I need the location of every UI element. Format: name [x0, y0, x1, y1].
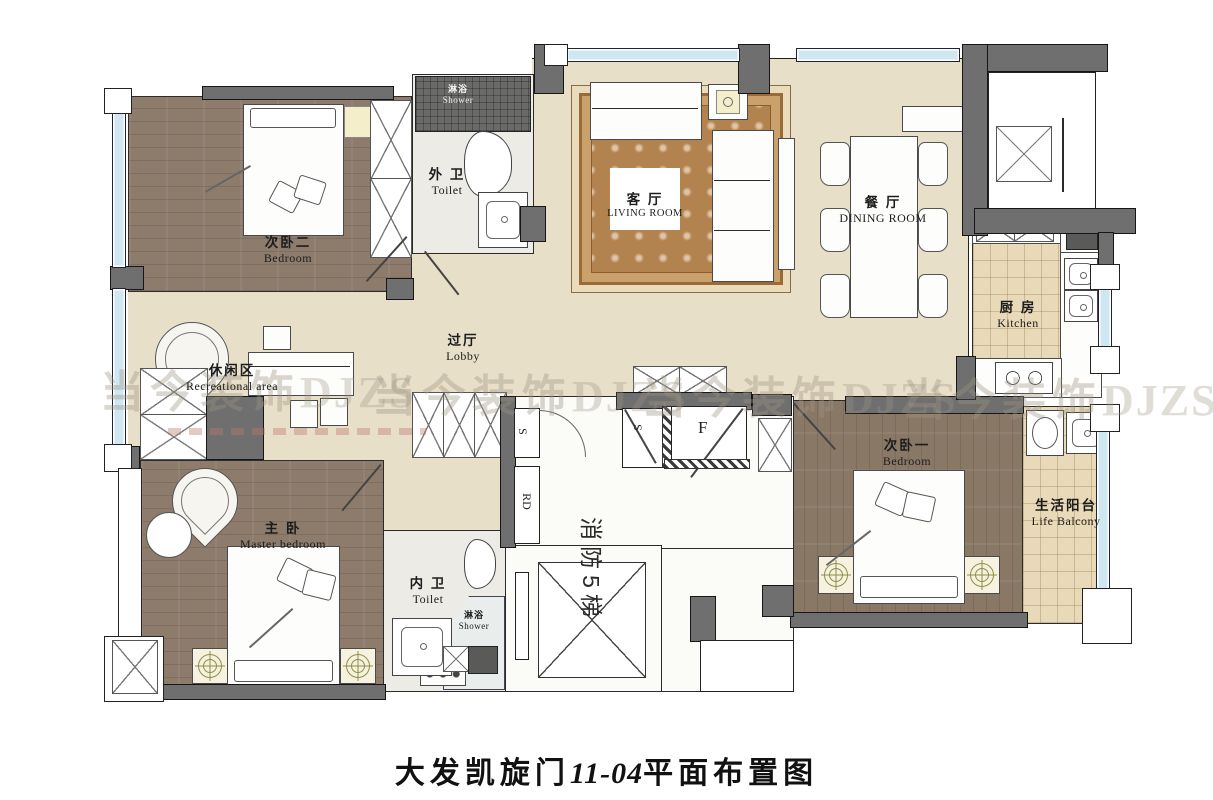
recreation-label-zh: 休闲区 — [186, 359, 278, 379]
door-label-s2: S — [630, 424, 645, 431]
inner-toilet-cabinet — [443, 646, 469, 672]
wall-bedroom1-bottom — [790, 612, 1028, 628]
floor-plan-page: { "title": {"prefix": "大发凯旋门", "unit": "… — [0, 0, 1213, 800]
corridor-wall-stub — [690, 596, 716, 642]
wall-shaft-bottom — [974, 208, 1136, 234]
wall-bedroom2-corner — [386, 278, 414, 300]
wall-living-top-mid — [738, 44, 770, 94]
side-table-lamp-dot — [723, 97, 733, 107]
frame-top-living-left — [544, 44, 568, 66]
bedroom2-wardrobe-cell — [370, 100, 412, 180]
bedroom1-headboard — [860, 576, 958, 598]
dining-room-label-en: DINING ROOM — [839, 211, 926, 226]
floor-hall-column — [380, 462, 508, 537]
plan-title-unit: 11-04 — [570, 757, 643, 790]
sofa-right-cushion-line2 — [714, 230, 770, 231]
window-top-dining — [796, 48, 960, 62]
dining-chair — [820, 142, 850, 186]
entry-right-cabinet — [758, 418, 792, 472]
kitchen-sink-lower — [1064, 290, 1098, 322]
master-nightstand-lamp — [346, 654, 370, 678]
entry-hatch-horizontal — [664, 459, 750, 469]
inner-toilet-appliance — [468, 646, 498, 674]
bedroom1-label-zh: 次卧一 — [883, 434, 931, 454]
lobby-label-en: Lobby — [446, 349, 480, 364]
inner-toilet-label-zh: 内 卫 — [410, 572, 447, 592]
bedroom1-nightstand-lamp — [970, 563, 994, 587]
frame-left-top — [104, 88, 132, 114]
master-label-zh: 主 卧 — [240, 517, 326, 537]
door-label-rd: RD — [519, 493, 534, 510]
living-room-label-en: LIVING ROOM — [607, 208, 683, 219]
bedroom2-label-en: Bedroom — [264, 251, 312, 266]
living-room-label-zh: 客 厅 — [607, 188, 683, 208]
door-label-s: S — [515, 428, 530, 435]
master-label-en: Master bedroom — [240, 537, 326, 552]
bedroom1-nightstand-lamp — [824, 563, 848, 587]
sofa-right — [712, 130, 774, 282]
dining-chair — [918, 142, 948, 186]
wall-bedroom2-top — [202, 86, 394, 100]
master-wardrobe-cell — [140, 414, 208, 460]
tv-console — [778, 138, 795, 270]
window-top-living — [566, 48, 740, 62]
frame-master-left-wall — [118, 468, 142, 642]
shaft-duct-cell — [996, 126, 1052, 182]
inner-shower-label-zh: 淋浴 — [459, 608, 490, 621]
bedroom2-wardrobe-cell — [370, 178, 412, 258]
plan-title-suffix: 平面布置图 — [643, 757, 818, 790]
wall-living-toilet-jog — [520, 206, 546, 242]
outer-toilet-label-zh: 外 卫 — [429, 163, 466, 183]
watermark: 当今装饰DJZS — [902, 364, 1213, 428]
elevator-rail — [515, 572, 529, 660]
master-round-table — [146, 512, 192, 558]
bedroom2-headboard — [250, 108, 336, 128]
life-balcony-label-en: Life Balcony — [1032, 514, 1101, 529]
outer-toilet-label-en: Toilet — [429, 183, 466, 198]
dining-chair — [918, 274, 948, 318]
door-label-entry-f: F — [698, 418, 707, 438]
outer-shower-label-en: Shower — [443, 95, 474, 105]
kitchen-label-zh: 厨 房 — [997, 296, 1039, 316]
outer-shower-label-zh: 淋浴 — [443, 82, 474, 95]
recreation-stool — [263, 326, 291, 350]
lobby-label-zh: 过厅 — [446, 329, 480, 349]
frame-right-kitchen-top — [1090, 264, 1120, 290]
master-headboard — [234, 660, 333, 682]
shaft-door-line — [1062, 118, 1064, 192]
kitchen-label-en: Kitchen — [997, 316, 1039, 331]
sofa-top — [590, 82, 702, 140]
window-left-bedroom2 — [112, 110, 126, 268]
plan-title-prefix: 大发凯旋门 — [395, 757, 570, 790]
dining-sideboard — [902, 106, 966, 132]
master-nightstand-lamp — [198, 654, 222, 678]
dining-chair — [820, 274, 850, 318]
plan-title: 大发凯旋门11-04平面布置图 — [395, 748, 818, 792]
sofa-right-cushion-line1 — [714, 180, 770, 181]
watermark-tagline — [168, 428, 426, 435]
wall-left-window-split — [110, 266, 144, 290]
sofa-top-cushion-line — [592, 108, 698, 109]
bedroom2-label-zh: 次卧二 — [264, 231, 312, 251]
wall-master-bottom — [148, 684, 386, 700]
inner-shower-label-en: Shower — [459, 621, 490, 631]
recreation-label-en: Recreational area — [186, 379, 278, 394]
dining-table — [850, 136, 918, 318]
dining-room-label-zh: 餐 厅 — [839, 191, 926, 211]
bedroom1-label-en: Bedroom — [883, 454, 931, 469]
corridor-neighbor-frame — [700, 640, 794, 692]
watermark: 当今装饰DJZS — [372, 360, 688, 424]
fire-elevator-label: 消防5梯 — [576, 517, 610, 623]
bottom-left-duct-cell — [112, 640, 158, 694]
window-right-kitchen — [1098, 286, 1112, 350]
wall-hall-bedroom1-bottom — [762, 585, 794, 617]
frame-balcony-bottom — [1082, 588, 1132, 644]
inner-toilet-label-en: Toilet — [410, 592, 447, 607]
life-balcony-label-zh: 生活阳台 — [1032, 494, 1101, 514]
